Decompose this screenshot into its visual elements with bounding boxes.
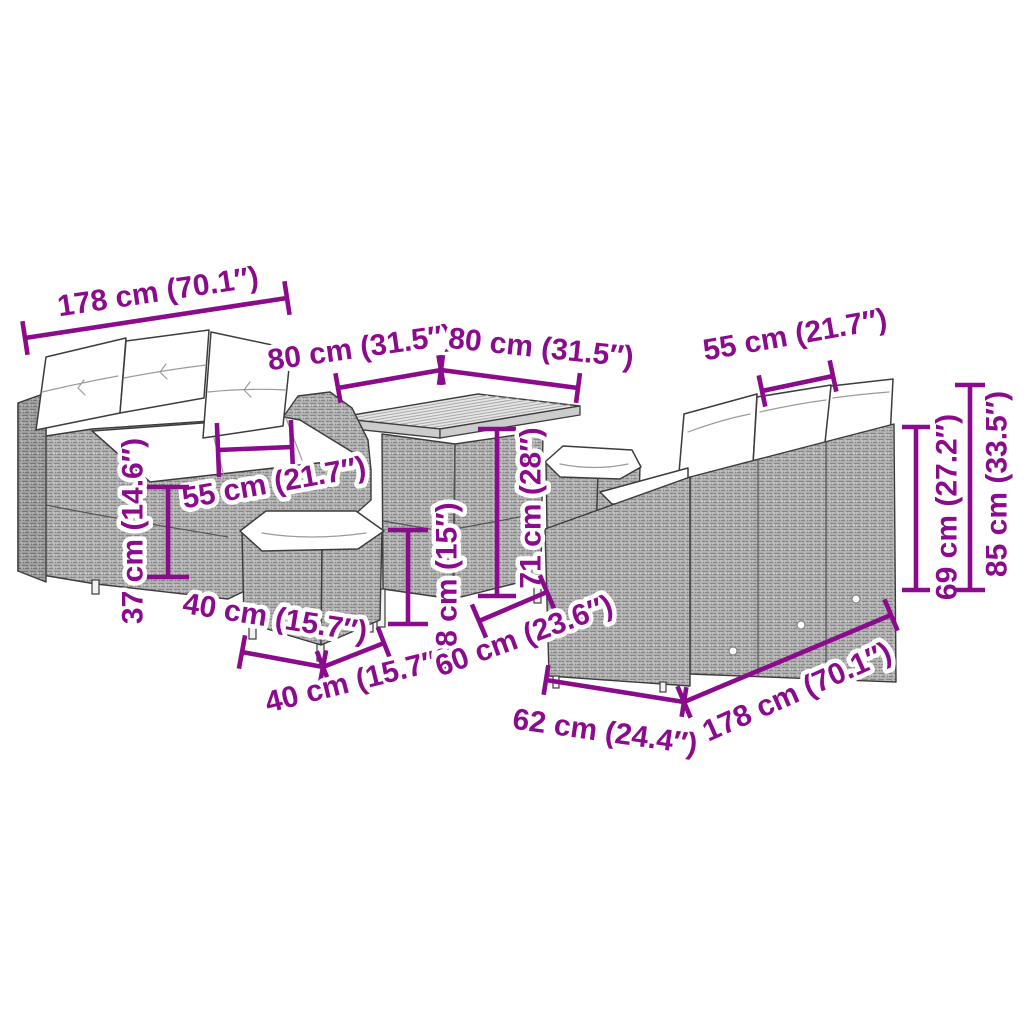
- dimension-end-tick: [217, 423, 219, 477]
- sofa-left-back-cushion: [120, 330, 209, 413]
- sofa-left-foot: [92, 580, 99, 594]
- ottoman-right-cushion: [545, 446, 641, 479]
- diagram-canvas: 178 cm (70.1″)80 cm (31.5″)80 cm (31.5″)…: [0, 0, 1024, 1024]
- dimension-line: [242, 652, 323, 667]
- dimension-label: 178 cm (70.1″): [55, 261, 260, 324]
- dimension-label: 55 cm (21.7″): [700, 303, 889, 368]
- dimension-85-total-height: 85 cm (33.5″): [955, 385, 1014, 590]
- dimension-line: [218, 447, 292, 450]
- dimension-label: 37 cm (14.6″): [117, 438, 150, 624]
- product-dimensions-diagram: 178 cm (70.1″)80 cm (31.5″)80 cm (31.5″)…: [0, 0, 1024, 1024]
- sofa-3-seater-right: [545, 379, 896, 692]
- dimension-line: [338, 370, 441, 388]
- dimension-69-back-height: 69 cm (27.2″): [902, 414, 964, 600]
- dimension-end-tick: [576, 373, 580, 403]
- dimension-end-tick: [284, 281, 289, 315]
- dimension-80-table-left: 80 cm (31.5″): [266, 319, 455, 403]
- sofa-right-foot: [660, 682, 666, 692]
- dimension-label: 38 cm (15″): [431, 502, 464, 663]
- dimension-label: 62 cm (24.4″): [511, 703, 700, 762]
- dimension-label: 69 cm (27.2″): [931, 414, 964, 600]
- dimension-label: 71 cm (28″): [515, 427, 548, 588]
- sofa-right-rivet: [797, 621, 805, 629]
- dimension-end-tick: [22, 321, 27, 355]
- ottoman-left-cushion: [240, 511, 384, 551]
- sofa-right-rivet: [852, 595, 860, 603]
- sofa-right-rivet: [729, 647, 737, 655]
- dimension-80-table-right: 80 cm (31.5″): [439, 322, 635, 403]
- dimension-end-tick: [239, 635, 245, 668]
- dimension-line: [441, 370, 578, 388]
- dimension-label: 80 cm (31.5″): [266, 319, 455, 378]
- dimension-label: 85 cm (33.5″): [981, 391, 1014, 577]
- dimension-label: 80 cm (31.5″): [447, 322, 636, 374]
- dimension-end-tick: [544, 665, 549, 695]
